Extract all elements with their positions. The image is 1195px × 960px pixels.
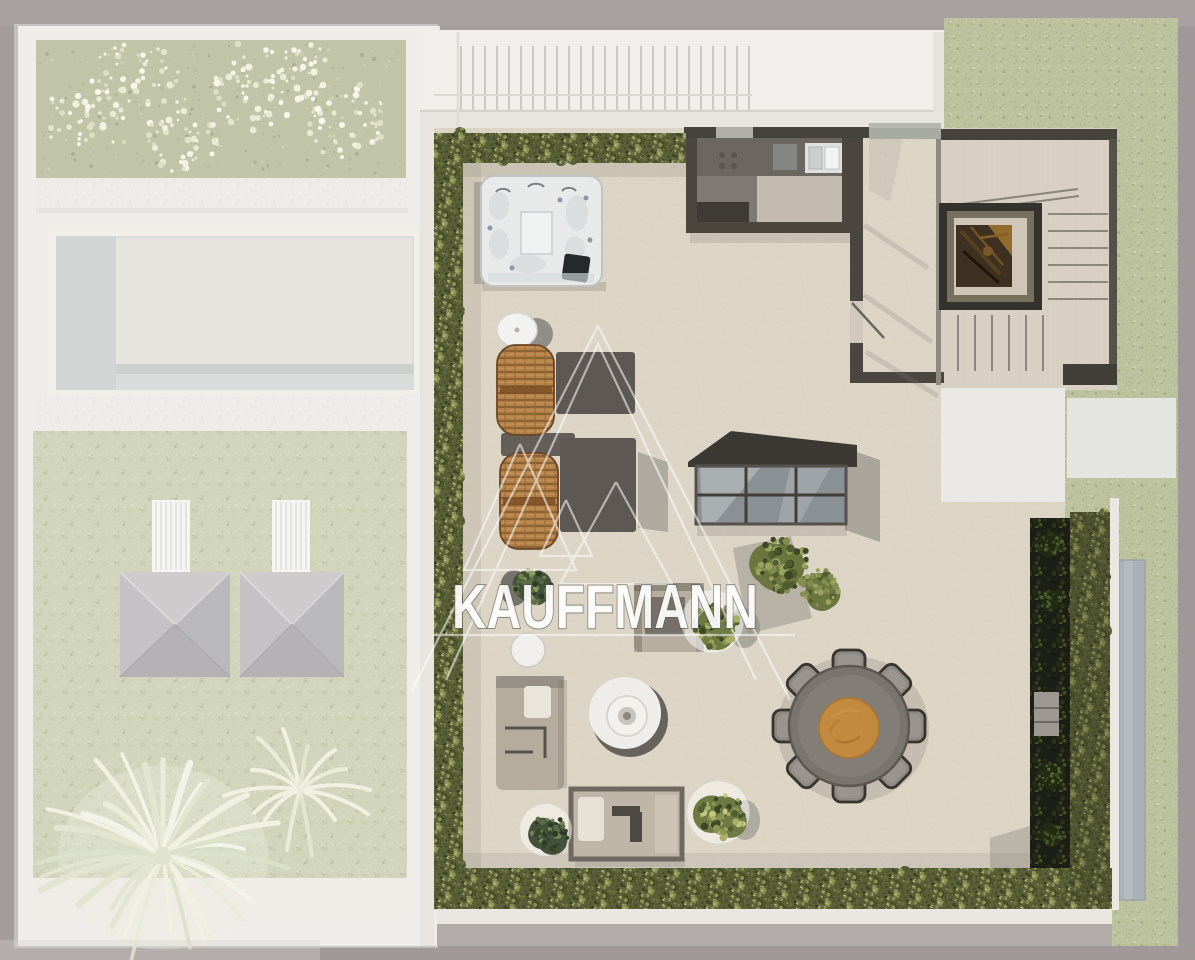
- svg-text:KAUFFMANN: KAUFFMANN: [452, 573, 758, 642]
